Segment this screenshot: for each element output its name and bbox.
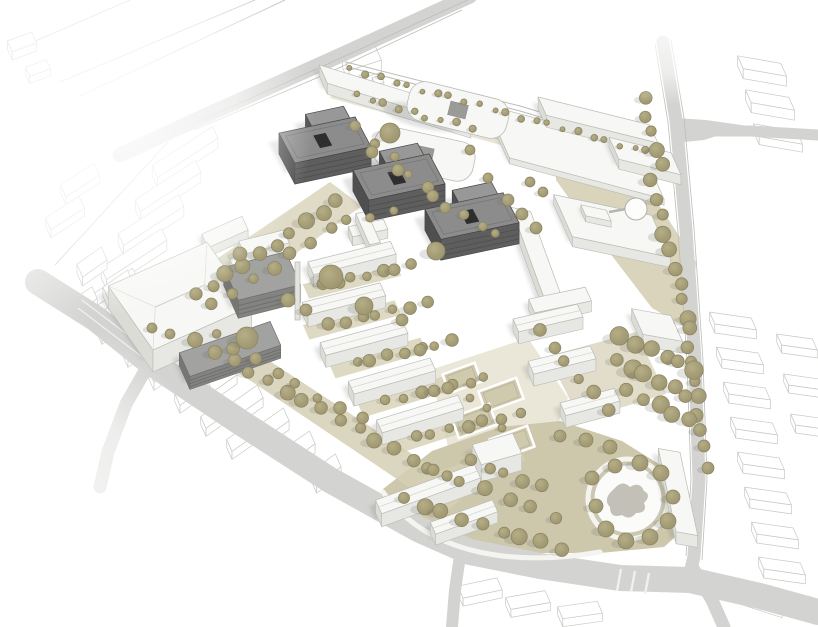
edge-fade bbox=[0, 100, 90, 520]
edge-fade bbox=[592, 0, 752, 105]
road-bottom-fork bbox=[452, 556, 460, 627]
masterplan-aerial-rendering bbox=[0, 0, 818, 627]
edge-fade bbox=[0, 570, 430, 627]
drum-roof-feature bbox=[625, 198, 647, 220]
site-plan-canvas bbox=[0, 0, 818, 627]
